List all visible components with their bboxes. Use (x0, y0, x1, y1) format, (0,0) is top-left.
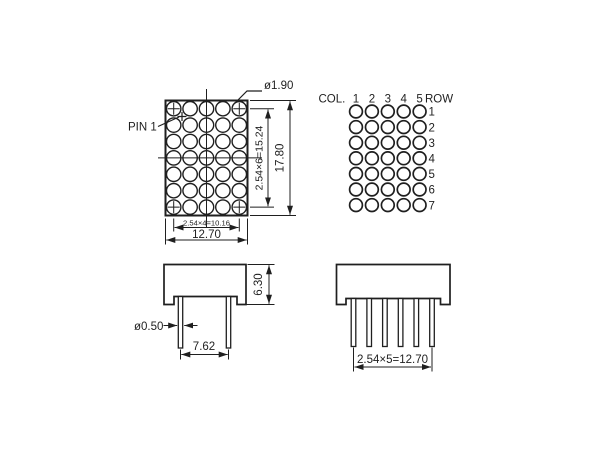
pin-map-dot (350, 183, 363, 196)
pin-map-dot (350, 105, 363, 118)
pin-map-dot (413, 105, 426, 118)
pin-map-dot (366, 168, 379, 181)
pin-map-dot (366, 199, 379, 212)
matrix-dot (183, 184, 197, 198)
pin-map-dot (413, 199, 426, 212)
row-number-label: 2 (429, 122, 435, 134)
lead-pin (430, 299, 435, 347)
matrix-dot (216, 167, 230, 181)
col-number-label: 5 (416, 94, 422, 106)
pin1-leader-line (158, 117, 179, 127)
width-dim-label: 12.70 (192, 229, 221, 241)
pin-map-dot (413, 183, 426, 196)
pin-map-dot (413, 121, 426, 134)
lead-pins (351, 299, 434, 347)
matrix-dot (216, 102, 230, 116)
pin-map-dot (397, 121, 410, 134)
matrix-dot (183, 167, 197, 181)
col-number-label: 2 (369, 94, 375, 106)
pin-spacing-dim-label: 7.62 (193, 341, 215, 353)
pin-map-dot (381, 152, 394, 165)
pin-map-dot (397, 105, 410, 118)
matrix-dot (232, 134, 246, 148)
row-pitch-dim-label: 2.54×6=15.24 (254, 125, 266, 190)
pin-map-dot (366, 105, 379, 118)
pin-map-dot (397, 136, 410, 149)
height-dim-label: 17.80 (275, 144, 287, 173)
matrix-dot (216, 200, 230, 214)
lead-pin (226, 297, 230, 349)
matrix-dot (216, 134, 230, 148)
matrix-dot (216, 184, 230, 198)
matrix-dot (167, 118, 181, 132)
col-pitch-dim-label: 2.54×4=10.16 (183, 218, 230, 227)
col-header-label: COL. (319, 94, 346, 106)
side-view-left: 6.30 ø0.50 7.62 (134, 265, 275, 360)
pin-map-dot (397, 199, 410, 212)
row-number-label: 7 (429, 200, 435, 212)
matrix-dot (183, 102, 197, 116)
pin-map-dot (397, 152, 410, 165)
lead-pin (414, 299, 419, 347)
col-number-label: 1 (353, 94, 359, 106)
col-number-label: 4 (400, 94, 407, 106)
pin1-label: PIN 1 (128, 122, 157, 134)
corner-crosshair-icon (233, 201, 245, 213)
row-number-label: 4 (429, 154, 436, 166)
matrix-dot (216, 118, 230, 132)
row-number-label: 3 (429, 138, 435, 150)
pin-map-dot (366, 152, 379, 165)
matrix-dot (232, 184, 246, 198)
pin-map-dot (381, 105, 394, 118)
matrix-dot (232, 167, 246, 181)
pin-map-dot (381, 121, 394, 134)
corner-crosshair-icon (233, 103, 245, 115)
matrix-dot (183, 200, 197, 214)
lead-pin (178, 297, 182, 349)
pin-map-dot (413, 136, 426, 149)
pin-map-dot (381, 168, 394, 181)
body-height-dim-label: 6.30 (253, 273, 265, 295)
matrix-dot (167, 167, 181, 181)
pin-map-dot (366, 183, 379, 196)
row-number-label: 6 (429, 185, 435, 197)
pin-map-dot (350, 199, 363, 212)
corner-crosshair-icon (168, 103, 180, 115)
pin-map-dot (350, 152, 363, 165)
matrix-dot (183, 118, 197, 132)
lead-pin (398, 299, 403, 347)
corner-crosshair-icon (168, 201, 180, 213)
pin-map-dot (366, 121, 379, 134)
pin-pitch-dim-label: 2.54×5=12.70 (357, 354, 428, 366)
lead-pin (351, 299, 356, 347)
matrix-dot (183, 134, 197, 148)
pin-map-dot (350, 136, 363, 149)
pin-map-dot (381, 199, 394, 212)
lead-pin (383, 299, 388, 347)
pin-map: COL. ROW 123451234567 (319, 94, 454, 213)
front-view: PIN 1 ø1.90 2.54×6=15.24 17.80 2.54×4=10… (128, 80, 296, 245)
pin-map-dot (413, 168, 426, 181)
matrix-dot (167, 134, 181, 148)
pin-map-dot (350, 168, 363, 181)
pin-map-dot (413, 152, 426, 165)
mechanical-drawing: PIN 1 ø1.90 2.54×6=15.24 17.80 2.54×4=10… (0, 0, 600, 450)
lead-pin (367, 299, 372, 347)
dot-diameter-leader-line (238, 91, 263, 101)
pin-map-grid: 123451234567 (350, 94, 436, 213)
side-view-right: 2.54×5=12.70 (337, 265, 451, 372)
row-number-label: 5 (429, 169, 435, 181)
row-number-label: 1 (429, 107, 435, 119)
pin-map-dot (397, 183, 410, 196)
pin-map-dot (350, 121, 363, 134)
col-number-label: 3 (385, 94, 391, 106)
pin-diameter-label: ø0.50 (134, 321, 163, 333)
matrix-dot (232, 118, 246, 132)
dot-diameter-label: ø1.90 (264, 80, 293, 92)
matrix-dot (167, 184, 181, 198)
row-header-label: ROW (425, 94, 453, 106)
pin-map-dot (381, 183, 394, 196)
pin-map-dot (381, 136, 394, 149)
pin-map-dot (397, 168, 410, 181)
pin-map-dot (366, 136, 379, 149)
package-body-outline (164, 265, 246, 305)
